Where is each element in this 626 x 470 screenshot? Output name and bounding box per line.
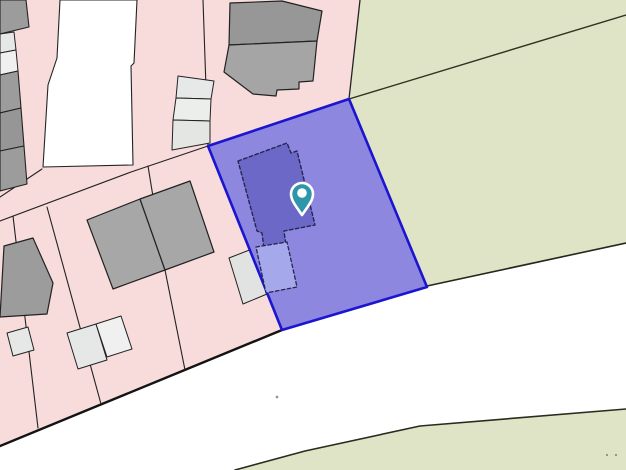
shed-row-2: [173, 98, 211, 121]
building-west-2: [0, 71, 21, 113]
building-west-4: [0, 146, 27, 191]
road-speck-2: [606, 454, 608, 456]
road-speck-3: [615, 454, 617, 456]
cadastral-map-viewport[interactable]: [0, 0, 626, 470]
location-pin-center-dot: [297, 188, 307, 198]
building-north-upper: [229, 1, 322, 45]
outbuilding-west-1: [0, 32, 16, 53]
map-svg: [0, 0, 626, 470]
field-area-south: [235, 409, 626, 470]
road-speck-1: [276, 396, 279, 399]
building-west-3: [0, 108, 24, 151]
